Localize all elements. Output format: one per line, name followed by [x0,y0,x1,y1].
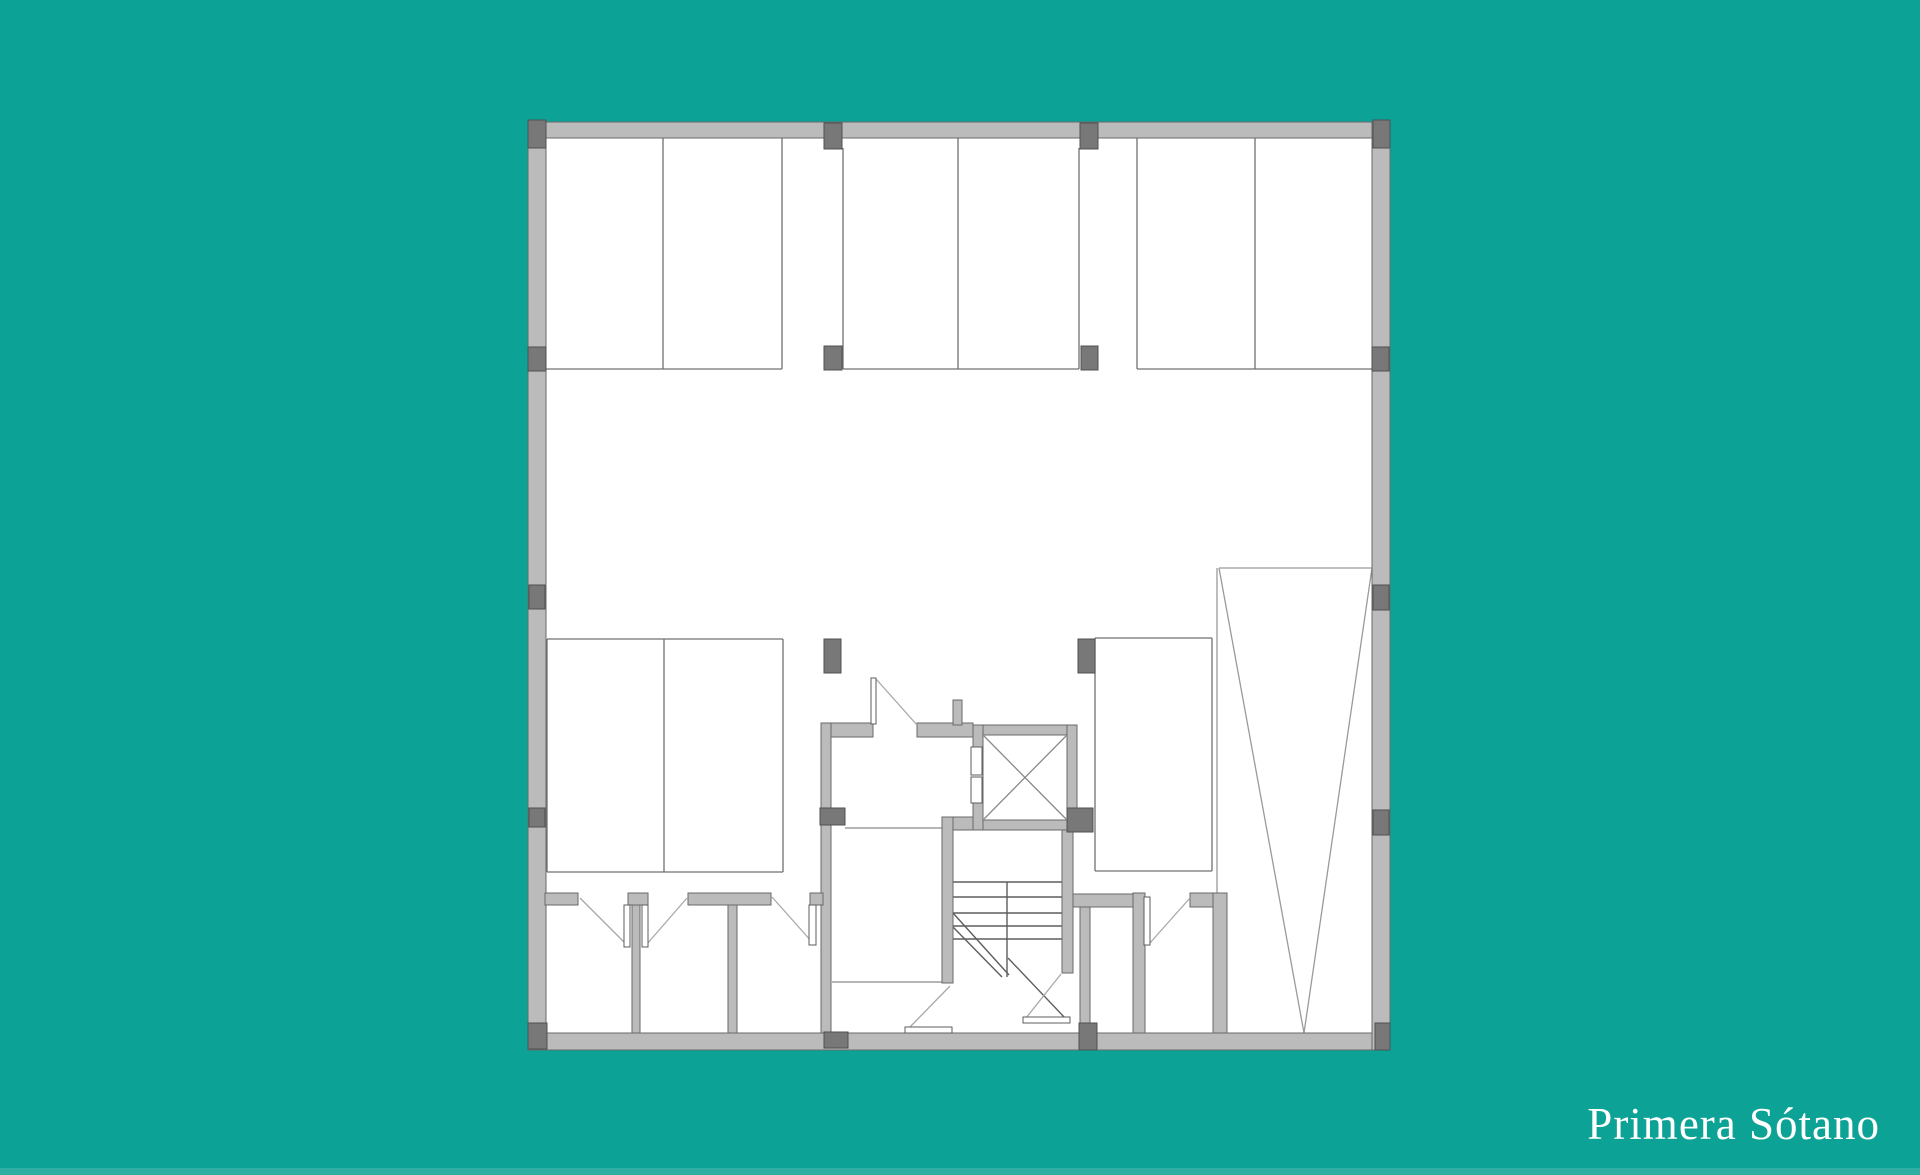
wall-segment [953,700,962,725]
door-panel [905,1027,952,1033]
door-panel [1144,897,1150,945]
structural-column [1372,347,1389,371]
wall-segment [1080,897,1090,1033]
wall-segment [545,893,578,905]
door-panel [624,905,630,947]
structural-column [824,123,842,149]
wall-segment [973,820,1077,830]
structural-column [1373,120,1390,148]
structural-column [528,347,546,371]
wall-segment [973,725,983,747]
structural-column [529,808,545,827]
elevator-door-leaf [971,747,982,775]
wall-segment [917,723,973,737]
structural-column [529,585,545,609]
wall-segment [688,893,771,905]
structural-column [528,120,546,148]
structural-column [1078,639,1095,673]
wall-segment [973,725,1077,735]
building-floor [528,122,1390,1050]
elevator-shaft [971,735,1067,820]
wall-segment [528,122,1390,138]
page-background: Primera Sótano [0,0,1920,1175]
wall-segment [528,1033,1390,1050]
wall-segment [728,905,737,1033]
wall-segment [632,905,640,1033]
bottom-edge-strip [0,1168,1920,1175]
wall-segment [973,803,983,830]
structural-column [1373,585,1389,610]
wall-segment [942,817,953,983]
wall-segment [1062,830,1073,973]
structural-column [1080,123,1098,149]
structural-column [1375,1023,1390,1050]
door-panel [809,905,816,945]
structural-column [1079,1023,1097,1050]
structural-column [528,1023,547,1049]
floor-plan [0,0,1920,1175]
structural-column [820,808,845,825]
structural-column [824,1032,848,1048]
wall-segment [1133,893,1145,1033]
floor-layer [528,122,1390,1050]
elevator-door-leaf [971,777,982,803]
wall-segment [1213,893,1227,1033]
door-panel [642,905,648,947]
wall-segment [1073,894,1133,907]
door-panel [871,678,876,724]
wall-segment [810,893,823,905]
structural-column [1373,810,1389,835]
structural-column [824,346,842,370]
floor-title: Primera Sótano [1587,1098,1880,1150]
structural-column [824,639,841,673]
structural-column [1067,808,1093,832]
door-panel [1023,1017,1070,1023]
structural-column [1081,346,1098,370]
wall-segment [628,893,648,905]
wall-segment [821,723,831,1033]
